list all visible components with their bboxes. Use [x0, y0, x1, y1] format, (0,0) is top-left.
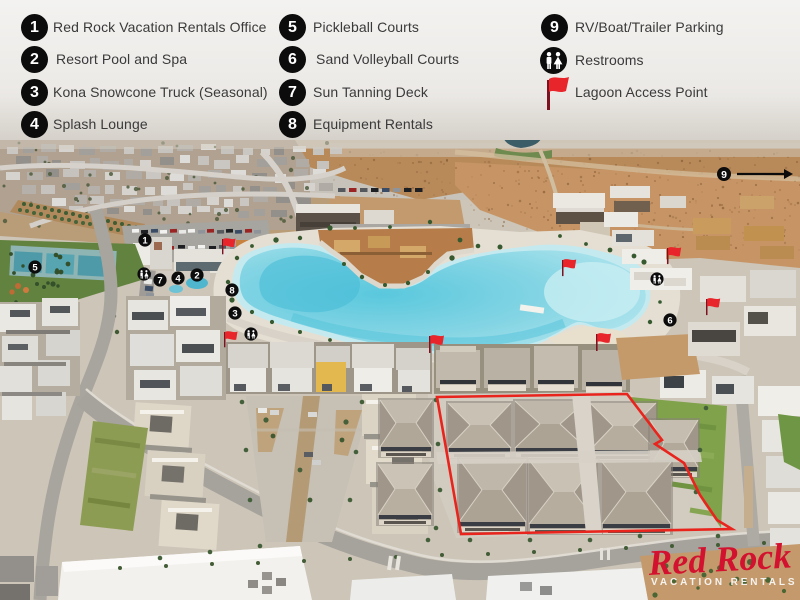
svg-text:6: 6: [667, 315, 672, 326]
svg-text:9: 9: [721, 169, 727, 181]
svg-text:1: 1: [142, 235, 148, 246]
svg-text:2: 2: [194, 270, 199, 281]
svg-text:7: 7: [157, 275, 162, 286]
svg-text:5: 5: [32, 262, 38, 273]
svg-text:Red Rock: Red Rock: [646, 536, 792, 583]
svg-text:4: 4: [175, 273, 181, 284]
svg-text:3: 3: [232, 308, 237, 319]
svg-text:8: 8: [229, 285, 234, 296]
